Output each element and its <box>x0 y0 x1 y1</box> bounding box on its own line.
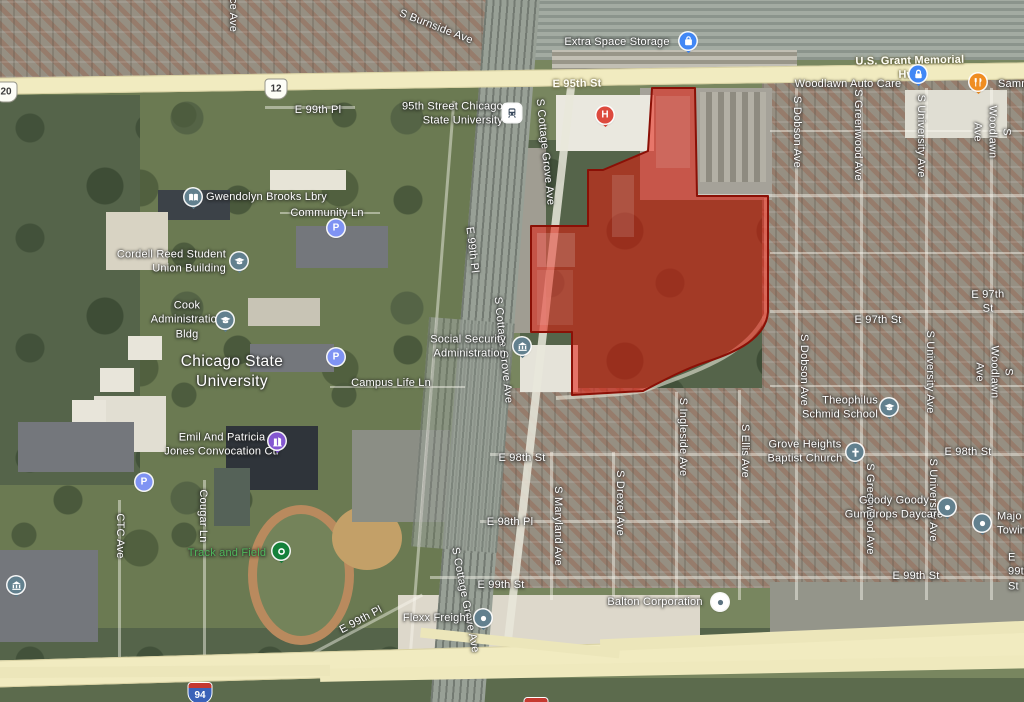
pin-glyph: P <box>333 352 340 363</box>
bank-icon <box>514 338 531 355</box>
us-route-20-shield: 20 <box>0 82 18 103</box>
balton-corporation-pin[interactable] <box>712 594 729 611</box>
book-icon <box>185 189 202 206</box>
woodlawn-auto-care-label[interactable]: Woodlawn Auto Care <box>795 77 902 91</box>
theophilus-schmid-school-pin[interactable] <box>881 399 898 416</box>
social-security-administration-label[interactable]: Social Security Administration <box>430 333 506 362</box>
parking-pin-1[interactable]: P <box>328 220 345 237</box>
us-route-12-shield: 12 <box>265 79 288 100</box>
shield-number: 20 <box>0 87 11 98</box>
train-icon <box>503 104 521 122</box>
poi-layer: Extra Space Storage95th Street Chicago S… <box>0 0 1024 702</box>
lock-icon <box>910 66 927 83</box>
cordell-reed-student-union-pin[interactable] <box>231 253 248 270</box>
jones-convocation-center-pin[interactable] <box>269 433 286 450</box>
goody-goody-gumdrops-daycare-label[interactable]: Goody Goody Gumdrops Daycare <box>845 494 944 523</box>
i94-shield-center: 94 <box>524 697 549 702</box>
extra-space-storage-label[interactable]: Extra Space Storage <box>564 35 669 49</box>
metra-95th-station-label[interactable]: 95th Street Chicago State University <box>402 100 503 129</box>
p-letter-icon: P <box>328 349 345 366</box>
p-letter-icon: P <box>328 220 345 237</box>
grad-icon <box>217 312 234 329</box>
flexx-freight-label[interactable]: Flexx Freight <box>403 611 469 625</box>
cook-administration-bldg-label[interactable]: Cook Administration Bldg <box>151 299 224 342</box>
metra-95th-station-pin[interactable] <box>503 104 521 122</box>
gwendolyn-brooks-library-pin[interactable] <box>185 189 202 206</box>
sammys-restaurant-label[interactable]: Sammy <box>998 77 1024 91</box>
cook-administration-bldg-pin[interactable] <box>217 312 234 329</box>
parking-pin-3[interactable]: P <box>136 474 153 491</box>
grad-icon <box>231 253 248 270</box>
goody-goody-gumdrops-daycare-pin[interactable] <box>939 499 956 516</box>
dot-icon <box>974 515 991 532</box>
building-pin[interactable] <box>8 577 25 594</box>
track-and-field-label[interactable]: Track and Field <box>188 546 266 560</box>
flexx-freight-pin[interactable] <box>475 610 492 627</box>
dotdark-icon <box>712 594 729 611</box>
major-towing-label[interactable]: Majo Towin <box>997 510 1024 539</box>
balton-corporation-label[interactable]: Balton Corporation <box>607 595 702 609</box>
grad-icon <box>881 399 898 416</box>
building-icon <box>269 433 286 450</box>
grove-heights-baptist-church-pin[interactable] <box>847 444 864 461</box>
pin-glyph: P <box>333 223 340 234</box>
cordell-reed-student-union-label[interactable]: Cordell Reed Student Union Building <box>117 248 226 277</box>
dot-icon <box>939 499 956 516</box>
shield-number: 94 <box>194 690 205 701</box>
i94-shield-left: 94 <box>188 682 213 702</box>
map-canvas[interactable]: S Burnside Avece AveE 95th StU.S. Grant … <box>0 0 1024 702</box>
hospital-pin[interactable]: H <box>597 107 614 124</box>
social-security-administration-pin[interactable] <box>514 338 531 355</box>
extra-space-storage-pin[interactable] <box>680 33 697 50</box>
pin-glyph: H <box>601 110 608 121</box>
jones-convocation-center-label[interactable]: Emil And Patricia Jones Convocation Ctr <box>164 431 279 460</box>
grove-heights-baptist-church-label[interactable]: Grove Heights Baptist Church <box>768 438 843 467</box>
shield-number: 12 <box>270 84 281 95</box>
p-letter-icon: P <box>136 474 153 491</box>
pin-glyph: P <box>141 477 148 488</box>
woodlawn-auto-care-pin[interactable] <box>910 66 927 83</box>
sammys-restaurant-pin[interactable] <box>970 74 987 91</box>
bank-icon <box>8 577 25 594</box>
bag-icon <box>680 33 697 50</box>
cross-icon <box>847 444 864 461</box>
parking-pin-2[interactable]: P <box>328 349 345 366</box>
gwendolyn-brooks-library-label[interactable]: Gwendolyn Brooks Lbry <box>206 190 327 204</box>
h-letter-icon: H <box>597 107 614 124</box>
shield-band <box>189 683 212 688</box>
trackdot-icon <box>273 543 290 560</box>
fork-icon <box>970 74 987 91</box>
shield-band <box>525 698 548 702</box>
major-towing-pin[interactable] <box>974 515 991 532</box>
theophilus-schmid-school-label[interactable]: Theophilus Schmid School <box>802 394 878 423</box>
dot-icon <box>475 610 492 627</box>
track-and-field-pin[interactable] <box>273 543 290 560</box>
